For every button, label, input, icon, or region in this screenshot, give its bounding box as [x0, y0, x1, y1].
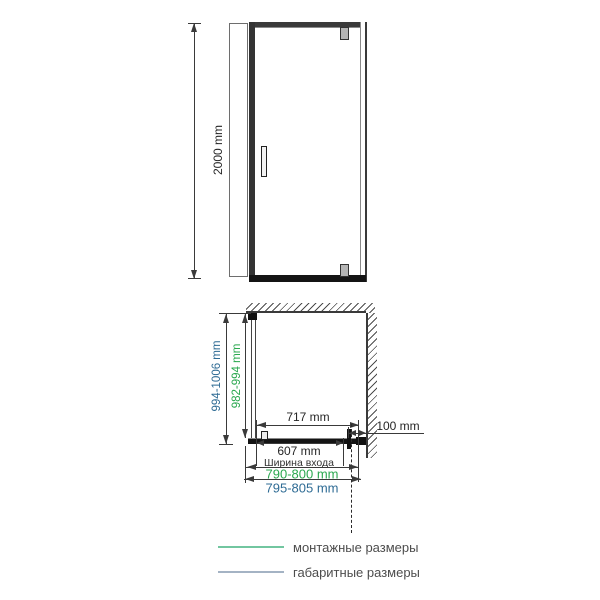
- arrow-right-icon: [349, 464, 358, 470]
- arrow-down-icon: [242, 429, 248, 438]
- plan-depth-mounting-line: [245, 313, 246, 438]
- plan-wall-offset-label: 100 mm: [376, 419, 419, 433]
- arrow-left-icon: [247, 464, 256, 470]
- arrow-left-icon: [257, 440, 264, 446]
- plan-depth-tick-bottom: [219, 444, 233, 445]
- plan-entrance-width-label: 607 mm: [277, 444, 320, 458]
- front-hinge-bottom: [340, 264, 349, 277]
- arrow-left-icon: [257, 422, 266, 428]
- arrow-up-icon: [223, 314, 229, 323]
- front-frame-right-bar: [360, 22, 367, 282]
- plan-door-width-label: 717 mm: [286, 410, 329, 424]
- plan-717-line: [256, 425, 359, 426]
- shower-door-technical-drawing: 2000 mm 994-1006 mm 982-994 mm 717 mm 10…: [0, 0, 600, 600]
- plan-wall-corner: [366, 303, 375, 313]
- front-frame-left-bar: [249, 22, 255, 282]
- arrow-left-icon: [245, 476, 254, 482]
- arrow-up-icon: [242, 314, 248, 323]
- arrow-right-icon: [352, 476, 361, 482]
- plan-wall-right: [366, 313, 377, 458]
- legend-overall-line: [218, 571, 284, 573]
- arrow-down-icon: [191, 270, 197, 279]
- front-side-panel: [229, 23, 248, 277]
- front-door-handle: [261, 146, 267, 177]
- front-height-dimension-line: [194, 23, 195, 279]
- arrow-right-icon: [359, 430, 366, 436]
- legend-mounting-line: [218, 546, 284, 548]
- plan-wall-top: [246, 303, 366, 313]
- plan-width-overall-label: 795-805 mm: [266, 481, 339, 496]
- arrow-up-icon: [191, 23, 197, 32]
- plan-depth-overall-label: 994-1006 mm: [211, 341, 223, 412]
- legend-mounting-label: монтажные размеры: [293, 540, 418, 555]
- legend-overall-label: габаритные размеры: [293, 565, 420, 580]
- plan-ext-entrance-right: [343, 438, 344, 466]
- plan-wall-profile: [248, 313, 257, 320]
- arrow-down-icon: [223, 435, 229, 444]
- front-hinge-top: [340, 27, 349, 40]
- plan-depth-mounting-label: 982-994 mm: [231, 344, 243, 409]
- plan-depth-overall-line: [226, 313, 227, 444]
- arrow-right-icon: [336, 440, 343, 446]
- front-height-label: 2000 mm: [211, 125, 225, 175]
- plan-door-handle: [261, 431, 268, 440]
